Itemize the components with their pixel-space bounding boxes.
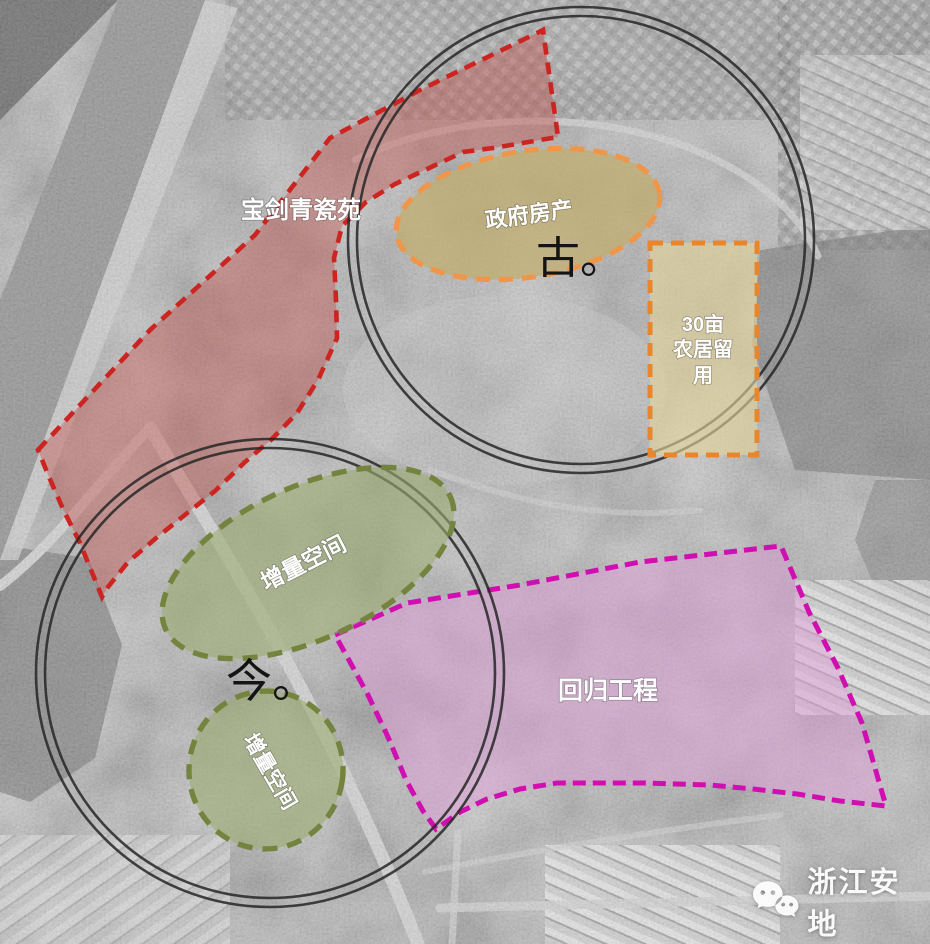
modern-marker-label: 今。 bbox=[226, 655, 318, 707]
ancient-marker-label: 古。 bbox=[536, 234, 624, 283]
watermark-text: 浙江安地 bbox=[807, 859, 930, 943]
zone-farm-reserve-label-line1: 30亩 bbox=[682, 312, 724, 336]
wechat-icon bbox=[752, 880, 799, 922]
zone-farm-reserve-label-line2: 农居留 bbox=[672, 337, 733, 361]
zone-baojian-label: 宝剑青瓷苑 bbox=[241, 196, 361, 224]
zone-farm-reserve-label-line3: 用 bbox=[693, 365, 713, 387]
watermark: 浙江安地 bbox=[752, 878, 930, 924]
zone-return-project-label: 回归工程 bbox=[558, 677, 658, 705]
site-analysis-map: 宝剑青瓷苑 政府房产 30亩农居留用 增量空间 增量空间 回归工程 古。 今。 … bbox=[0, 0, 930, 944]
annotation-overlay: 宝剑青瓷苑 政府房产 30亩农居留用 增量空间 增量空间 回归工程 古。 今。 bbox=[0, 0, 930, 944]
